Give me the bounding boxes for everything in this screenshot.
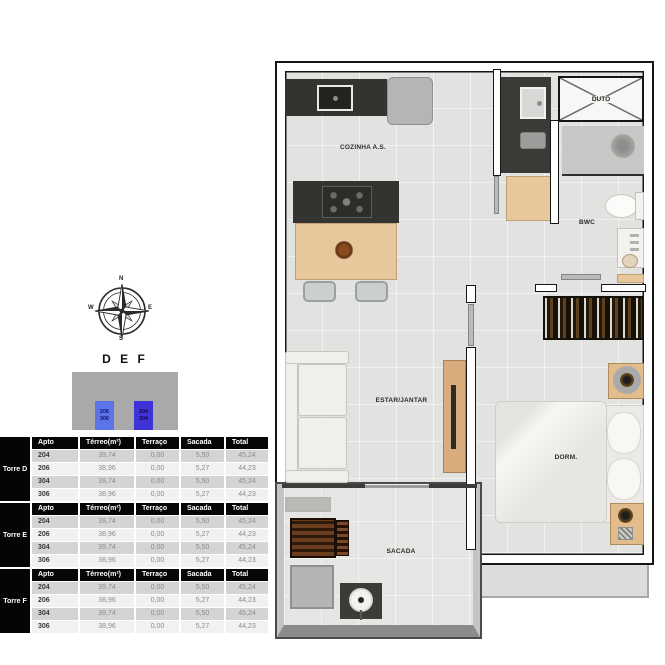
column-header: Apto [32, 503, 78, 515]
table-cell: 306 [32, 555, 78, 567]
pillow [607, 412, 641, 454]
table-row: 20638,960,005,2744,23 [32, 529, 268, 541]
table-cell: 204 [32, 450, 78, 462]
table-cell: 45,24 [226, 542, 268, 554]
kitchen-sink [317, 85, 353, 111]
table-row: 30439,740,005,5045,24 [32, 476, 268, 488]
bed [495, 401, 607, 523]
table-cell: 39,74 [80, 582, 134, 594]
wall-sacada-right [429, 484, 477, 488]
laundry-wood-cabinet [506, 176, 551, 221]
table-cell: 5,27 [181, 595, 224, 607]
column-header: Apto [32, 437, 78, 449]
room-label-sacada: SACADA [371, 548, 431, 555]
kitchen-faucet-icon [333, 96, 338, 101]
page: N S W E D E F 206 306 204 304 Torre DApt… [0, 0, 665, 665]
table-header-row: AptoTérreo(m²)TerraçoSacadaTotal [32, 503, 268, 515]
table-cell: 38,96 [80, 529, 134, 541]
column-header: Terraço [136, 503, 179, 515]
laundry-basket [520, 132, 546, 149]
table-cell: 45,24 [226, 450, 268, 462]
wall-bedroom-top [466, 285, 476, 303]
sofa-cushion [298, 364, 347, 416]
table-row: 20439,740,005,5045,24 [32, 582, 268, 594]
balcony-bench-inner [287, 499, 329, 510]
table-cell: 0,00 [136, 529, 179, 541]
key-title: D E F [72, 352, 178, 366]
table-cell: 306 [32, 621, 78, 633]
table-cell: 44,23 [226, 621, 268, 633]
vanity-drawer [630, 248, 639, 251]
table-cell: 206 [32, 463, 78, 475]
toilet-tank [635, 192, 644, 220]
table-cell: 206 [32, 595, 78, 607]
table-cell: 44,23 [226, 555, 268, 567]
room-label-estar: ESTAR/JANTAR [369, 397, 434, 404]
tower-table-grid: AptoTérreo(m²)TerraçoSacadaTotal20439,74… [32, 503, 268, 567]
tower-table: Torre EAptoTérreo(m²)TerraçoSacadaTotal2… [0, 503, 268, 567]
cooktop-icon [322, 186, 372, 218]
table-row: 20638,960,005,2744,23 [32, 463, 268, 475]
table-cell: 0,00 [136, 450, 179, 462]
table-cell: 45,24 [226, 476, 268, 488]
sofa-cushion [298, 417, 347, 469]
lamp-icon [618, 508, 633, 523]
table-cell: 39,74 [80, 450, 134, 462]
column-header: Total [226, 503, 268, 515]
table-cell: 0,00 [136, 463, 179, 475]
balcony-drain-icon [358, 597, 364, 603]
table-cell: 5,50 [181, 582, 224, 594]
sofa-armrest [285, 351, 349, 364]
column-header: Sacada [181, 503, 224, 515]
column-header: Total [226, 569, 268, 581]
column-header: Total [226, 437, 268, 449]
table-row: 30439,740,005,5045,24 [32, 608, 268, 620]
laundry-faucet-icon [537, 101, 542, 106]
table-cell: 5,27 [181, 621, 224, 633]
column-header: Sacada [181, 569, 224, 581]
table-cell: 5,50 [181, 476, 224, 488]
compass-rose: N S W E [88, 276, 156, 346]
table-cell: 0,00 [136, 516, 179, 528]
table-header-row: AptoTérreo(m²)TerraçoSacadaTotal [32, 569, 268, 581]
table-cell: 204 [32, 582, 78, 594]
wall-bedroom [466, 347, 476, 550]
table-cell: 39,74 [80, 608, 134, 620]
toilet [605, 194, 638, 218]
shower-head-icon [611, 134, 635, 158]
vanity-drawer [630, 241, 639, 244]
kitchen-door [494, 176, 499, 214]
table-cell: 39,74 [80, 516, 134, 528]
wall-sacada-left [282, 484, 365, 488]
wardrobe [543, 296, 644, 340]
sliding-door-track [365, 485, 429, 488]
floor-plan: DUTO COZINHA A.S. BWC [277, 60, 657, 642]
tower-table-grid: AptoTérreo(m²)TerraçoSacadaTotal20439,74… [32, 569, 268, 633]
pillow [607, 458, 641, 500]
sofa-back [285, 351, 298, 483]
bwc-door [561, 274, 601, 280]
table-cell: 206 [32, 529, 78, 541]
key-unit-206-306: 206 306 [95, 401, 114, 430]
table-cell: 0,00 [136, 555, 179, 567]
table-cell: 0,00 [136, 621, 179, 633]
table-cell: 38,96 [80, 555, 134, 567]
tower-label: Torre F [0, 569, 30, 633]
table-cell: 5,27 [181, 489, 224, 501]
lamp-icon [620, 373, 634, 387]
vanity-drawer [630, 234, 639, 237]
table-cell: 0,00 [136, 489, 179, 501]
grill-side [336, 520, 349, 556]
table-row: 30638,960,005,2744,23 [32, 555, 268, 567]
compass-icon [91, 280, 153, 342]
column-header: Térreo(m²) [80, 569, 134, 581]
table-cell: 304 [32, 542, 78, 554]
table-cell: 38,96 [80, 489, 134, 501]
chair [355, 281, 388, 302]
shower-glass [562, 174, 644, 176]
table-decor [335, 240, 353, 260]
duct-shaft: DUTO [558, 76, 644, 122]
table-row: 20439,740,005,5045,24 [32, 450, 268, 462]
table-cell: 5,50 [181, 450, 224, 462]
room-label-cozinha: COZINHA A.S. [313, 144, 413, 151]
balcony-faucet-icon [360, 610, 362, 620]
table-cell: 0,00 [136, 608, 179, 620]
tower-table: Torre FAptoTérreo(m²)TerraçoSacadaTotal2… [0, 569, 268, 633]
grill [290, 518, 336, 558]
tower-table: Torre DAptoTérreo(m²)TerraçoSacadaTotal2… [0, 437, 268, 501]
fridge [387, 77, 433, 125]
table-cell: 0,00 [136, 542, 179, 554]
column-header: Sacada [181, 437, 224, 449]
table-cell: 38,96 [80, 463, 134, 475]
table-cell: 204 [32, 516, 78, 528]
tv-icon [451, 385, 456, 449]
table-cell: 45,24 [226, 608, 268, 620]
table-cell: 304 [32, 608, 78, 620]
laundry-sink [520, 87, 546, 119]
column-header: Apto [32, 569, 78, 581]
bwc-basin [622, 254, 638, 268]
table-cell: 5,27 [181, 529, 224, 541]
tower-label: Torre E [0, 503, 30, 567]
key-block-diagram: 206 306 204 304 [72, 372, 178, 430]
room-label-dorm: DORM. [545, 454, 587, 461]
table-cell: 44,23 [226, 595, 268, 607]
table-cell: 45,24 [226, 516, 268, 528]
table-cell: 0,00 [136, 582, 179, 594]
tables: Torre DAptoTérreo(m²)TerraçoSacadaTotal2… [0, 437, 268, 635]
table-cell: 38,96 [80, 595, 134, 607]
wall-bwc-bottom-left [535, 284, 557, 292]
table-cell: 5,50 [181, 542, 224, 554]
tower-table-grid: AptoTérreo(m²)TerraçoSacadaTotal20439,74… [32, 437, 268, 501]
table-cell: 5,27 [181, 555, 224, 567]
table-cell: 5,50 [181, 608, 224, 620]
key-unit-204-304: 204 304 [134, 401, 153, 430]
table-header-row: AptoTérreo(m²)TerraçoSacadaTotal [32, 437, 268, 449]
table-cell: 38,96 [80, 621, 134, 633]
nightstand-decor [618, 527, 633, 540]
column-header: Terraço [136, 437, 179, 449]
table-cell: 39,74 [80, 542, 134, 554]
column-header: Terraço [136, 569, 179, 581]
sofa-armrest [285, 470, 349, 483]
tower-label: Torre D [0, 437, 30, 501]
balcony-mat [290, 565, 334, 609]
table-cell: 5,50 [181, 516, 224, 528]
wall-laundry-bwc [550, 120, 559, 224]
room-label-duto: DUTO [590, 96, 612, 103]
table-cell: 44,23 [226, 463, 268, 475]
table-cell: 304 [32, 476, 78, 488]
outside-apron [479, 565, 649, 598]
table-row: 30439,740,005,5045,24 [32, 542, 268, 554]
balcony-bench [285, 497, 331, 512]
table-cell: 0,00 [136, 595, 179, 607]
room-label-bwc: BWC [565, 219, 609, 226]
wall-bwc-bottom-right [601, 284, 646, 292]
table-cell: 39,74 [80, 476, 134, 488]
table-cell: 44,23 [226, 489, 268, 501]
wall-kitchen [493, 69, 501, 176]
table-cell: 0,00 [136, 476, 179, 488]
table-cell: 5,27 [181, 463, 224, 475]
column-header: Térreo(m²) [80, 503, 134, 515]
table-row: 20638,960,005,2744,23 [32, 595, 268, 607]
bwc-wood-strip [617, 274, 644, 283]
table-cell: 306 [32, 489, 78, 501]
table-row: 30638,960,005,2744,23 [32, 621, 268, 633]
chair [303, 281, 336, 302]
table-row: 30638,960,005,2744,23 [32, 489, 268, 501]
column-header: Térreo(m²) [80, 437, 134, 449]
table-cell: 45,24 [226, 582, 268, 594]
table-row: 20439,740,005,5045,24 [32, 516, 268, 528]
bedroom-door [468, 304, 474, 346]
table-cell: 44,23 [226, 529, 268, 541]
